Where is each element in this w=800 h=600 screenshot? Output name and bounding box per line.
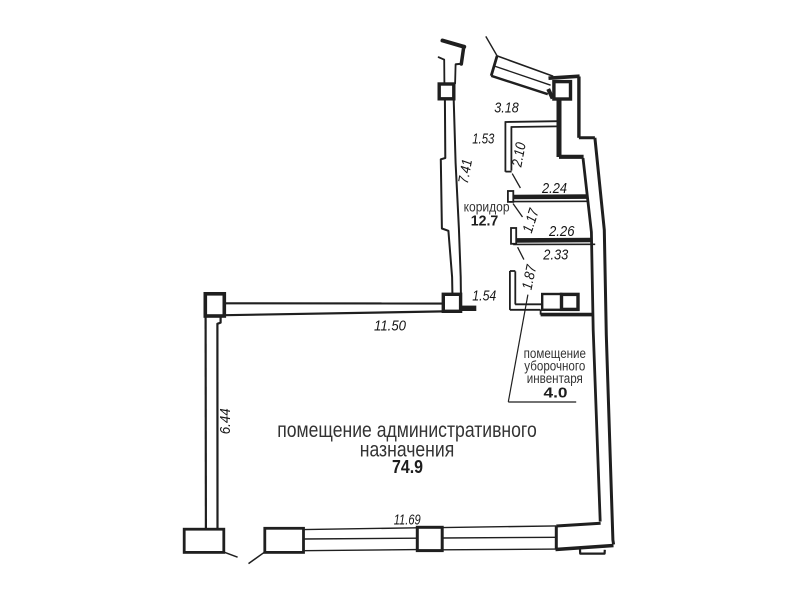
svg-text:2.24: 2.24 <box>541 181 567 197</box>
svg-text:11.69: 11.69 <box>394 512 421 528</box>
svg-text:12.7: 12.7 <box>471 214 499 230</box>
svg-text:3.18: 3.18 <box>494 100 519 116</box>
svg-text:2.26: 2.26 <box>548 224 575 240</box>
svg-text:1.53: 1.53 <box>472 132 494 148</box>
svg-text:2.33: 2.33 <box>542 247 568 263</box>
svg-text:4.0: 4.0 <box>544 385 568 402</box>
svg-text:74.9: 74.9 <box>392 457 423 477</box>
svg-text:11.50: 11.50 <box>374 319 406 335</box>
svg-text:6.44: 6.44 <box>218 408 234 434</box>
svg-text:1.54: 1.54 <box>472 289 496 305</box>
svg-text:коридор: коридор <box>464 199 510 215</box>
